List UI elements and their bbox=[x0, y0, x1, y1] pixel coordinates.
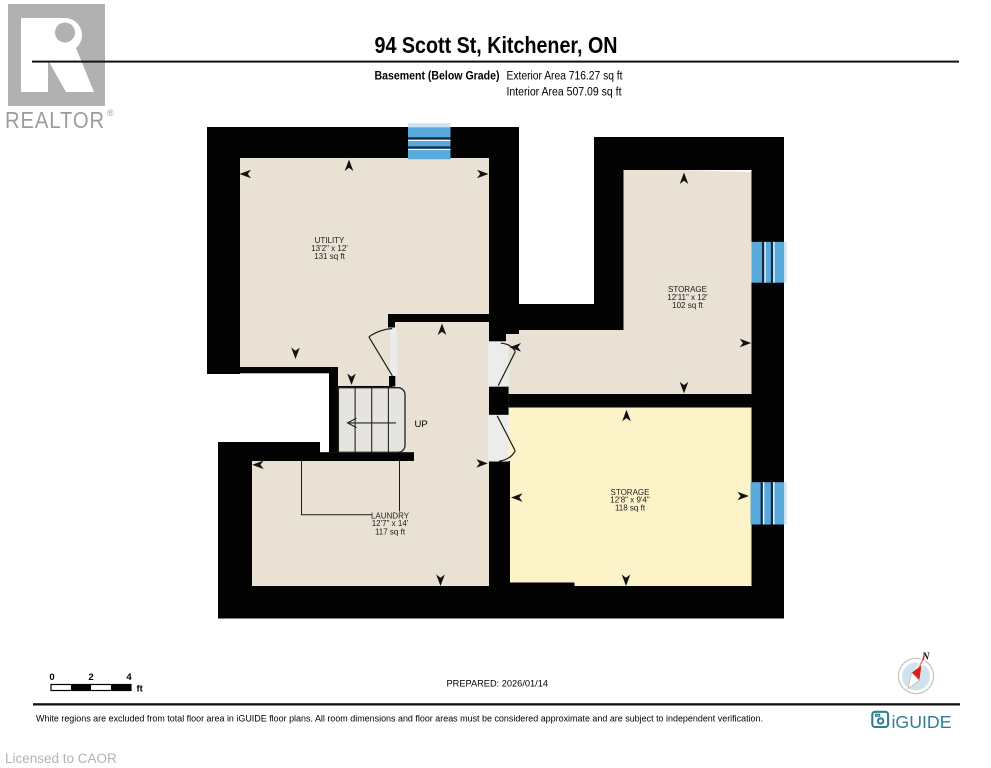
svg-text:4: 4 bbox=[126, 672, 132, 683]
svg-text:N: N bbox=[921, 652, 930, 663]
svg-text:iGUIDE: iGUIDE bbox=[892, 712, 952, 732]
svg-text:131 sq ft: 131 sq ft bbox=[314, 252, 345, 261]
svg-text:2: 2 bbox=[88, 672, 93, 683]
svg-text:Interior Area 507.09 sq ft: Interior Area 507.09 sq ft bbox=[507, 87, 623, 99]
svg-text:PREPARED: 2026/01/14: PREPARED: 2026/01/14 bbox=[447, 679, 549, 689]
svg-text:REALTOR: REALTOR bbox=[5, 107, 105, 133]
svg-text:94 Scott St, Kitchener, ON: 94 Scott St, Kitchener, ON bbox=[375, 32, 618, 58]
svg-text:®: ® bbox=[107, 108, 114, 118]
svg-text:White regions are excluded fro: White regions are excluded from total fl… bbox=[36, 714, 763, 724]
svg-text:ft: ft bbox=[137, 684, 144, 695]
svg-text:0: 0 bbox=[49, 672, 54, 683]
svg-text:118 sq ft: 118 sq ft bbox=[615, 503, 646, 512]
svg-text:UP: UP bbox=[415, 419, 428, 430]
svg-text:102 sq ft: 102 sq ft bbox=[672, 301, 703, 310]
svg-text:Basement (Below Grade): Basement (Below Grade) bbox=[375, 71, 500, 83]
svg-text:Exterior Area 716.27 sq ft: Exterior Area 716.27 sq ft bbox=[507, 71, 624, 83]
svg-text:Licensed to CAOR: Licensed to CAOR bbox=[5, 751, 117, 766]
svg-text:117 sq ft: 117 sq ft bbox=[375, 527, 406, 536]
